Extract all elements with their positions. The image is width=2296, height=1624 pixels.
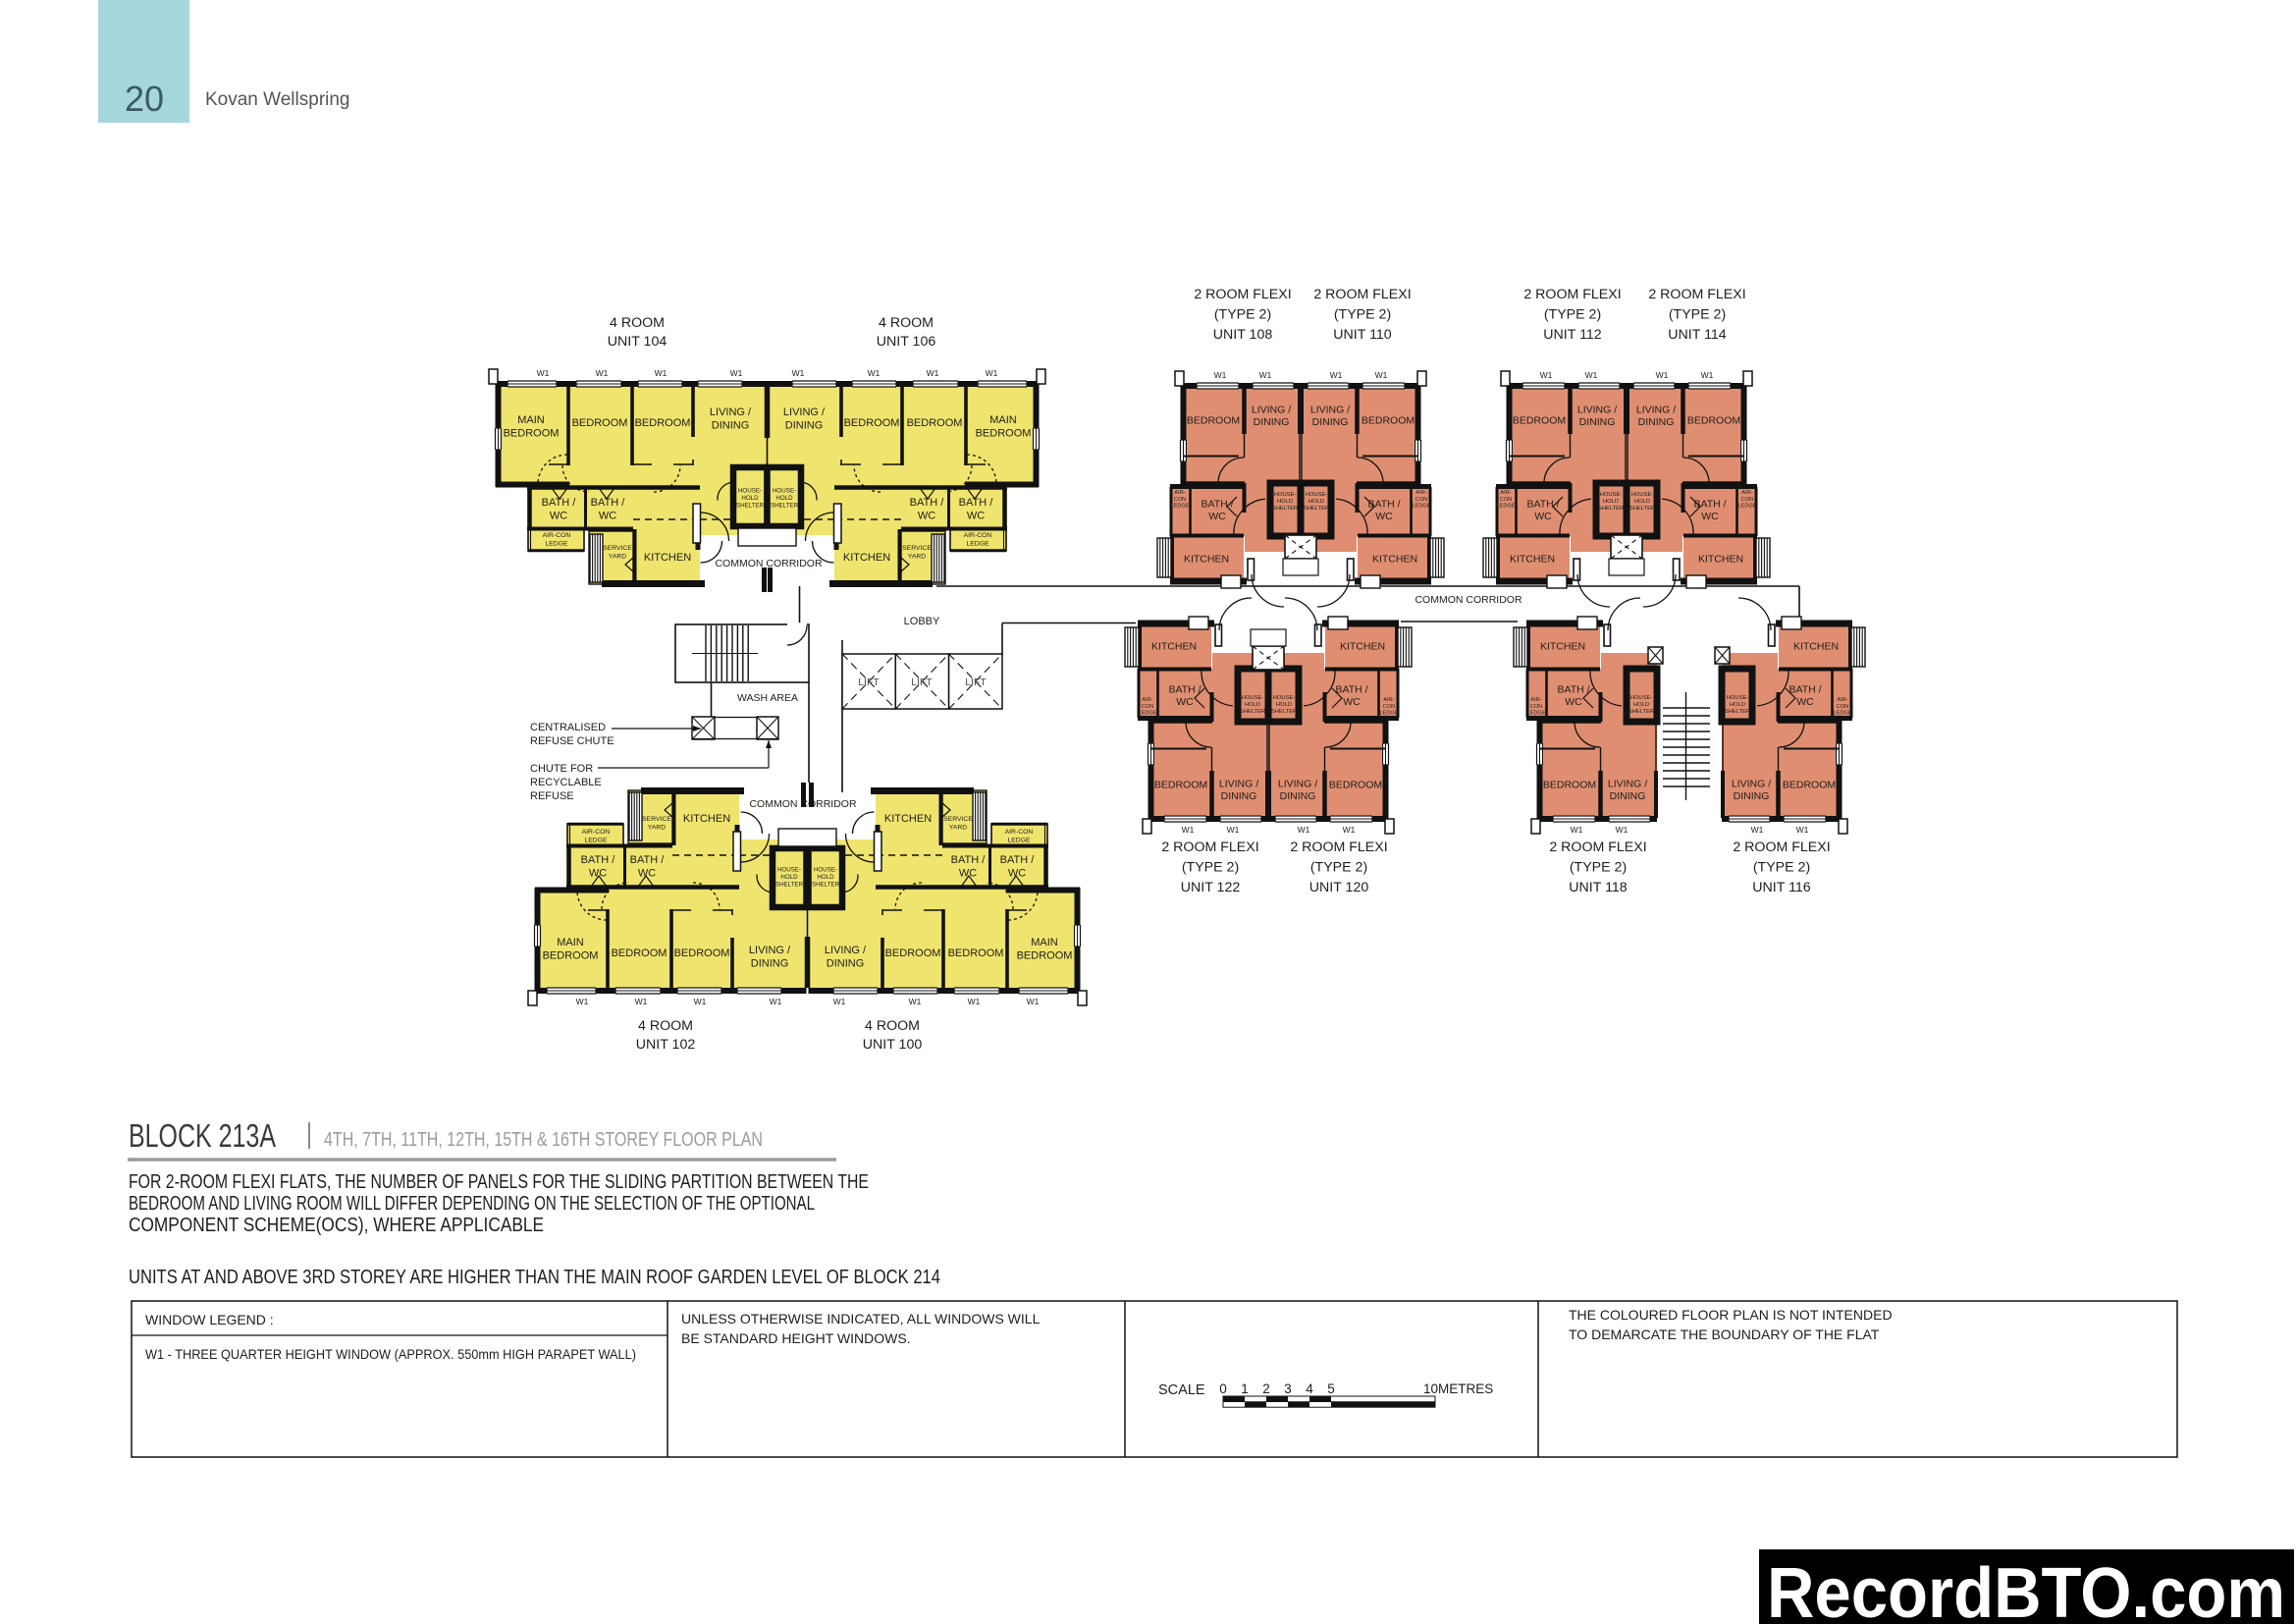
svg-text:(TYPE 2): (TYPE 2) (1669, 307, 1726, 323)
svg-text:DINING: DINING (827, 958, 865, 970)
svg-text:SHELTER: SHELTER (1240, 709, 1265, 715)
svg-text:HOUSE-: HOUSE- (773, 488, 796, 495)
svg-text:CON: CON (1383, 704, 1395, 710)
svg-text:W1: W1 (1027, 997, 1040, 1006)
svg-text:WC: WC (550, 511, 567, 522)
svg-text:SHELTER: SHELTER (736, 503, 765, 510)
svg-text:BATH /: BATH / (910, 497, 945, 509)
svg-text:BEDROOM: BEDROOM (948, 947, 1004, 959)
svg-text:SHELTER: SHELTER (1725, 709, 1750, 715)
svg-text:SCALE: SCALE (1158, 1382, 1205, 1398)
svg-text:(TYPE 2): (TYPE 2) (1544, 307, 1601, 323)
svg-text:WC: WC (599, 511, 616, 522)
svg-text:BATH /: BATH / (1168, 683, 1201, 695)
svg-text:THE COLOURED FLOOR PLAN IS NOT: THE COLOURED FLOOR PLAN IS NOT INTENDED (1569, 1307, 1893, 1323)
svg-text:KITCHEN: KITCHEN (1184, 554, 1229, 566)
svg-text:BEDROOM: BEDROOM (635, 417, 691, 429)
svg-text:UNIT 118: UNIT 118 (1569, 880, 1628, 895)
svg-text:MAIN: MAIN (557, 937, 584, 948)
svg-text:SERVICE: SERVICE (902, 545, 932, 552)
svg-text:(TYPE 2): (TYPE 2) (1182, 860, 1239, 876)
svg-text:LIVING /: LIVING / (1608, 778, 1647, 789)
svg-text:W1: W1 (868, 368, 881, 378)
svg-text:WC: WC (589, 868, 607, 880)
svg-text:W1: W1 (730, 368, 743, 378)
svg-text:BEDROOM: BEDROOM (844, 417, 900, 429)
svg-text:WC: WC (918, 511, 935, 522)
svg-text:UNIT 108: UNIT 108 (1213, 327, 1273, 343)
svg-text:HOUSE-: HOUSE- (1306, 492, 1328, 498)
svg-text:2 ROOM FLEXI: 2 ROOM FLEXI (1549, 839, 1646, 855)
svg-text:BEDROOM: BEDROOM (976, 428, 1032, 440)
svg-text:UNIT 114: UNIT 114 (1668, 327, 1727, 343)
svg-text:W1: W1 (833, 997, 846, 1006)
svg-text:W1: W1 (1259, 370, 1272, 380)
svg-text:W1: W1 (1796, 825, 1809, 835)
svg-text:BEDROOM: BEDROOM (1329, 780, 1382, 791)
svg-text:AIR-CON: AIR-CON (582, 829, 611, 836)
svg-text:DINING: DINING (1579, 416, 1616, 428)
svg-text:HOUSE-: HOUSE- (1242, 695, 1264, 701)
svg-text:W1: W1 (1182, 825, 1195, 835)
svg-text:SHELTER: SHELTER (1272, 506, 1298, 512)
svg-text:BATH /: BATH / (951, 854, 987, 866)
svg-text:CON: CON (1415, 497, 1427, 503)
svg-text:W1: W1 (927, 368, 939, 378)
svg-text:WC: WC (1375, 511, 1393, 522)
svg-text:WC: WC (967, 511, 985, 522)
svg-text:LIFT: LIFT (911, 677, 933, 688)
svg-text:HOUSE-: HOUSE- (1600, 492, 1623, 498)
svg-text:UNIT 112: UNIT 112 (1543, 327, 1602, 343)
svg-text:UNIT 106: UNIT 106 (877, 334, 936, 350)
svg-text:BEDROOM: BEDROOM (907, 417, 963, 429)
svg-text:W1: W1 (792, 368, 805, 378)
svg-text:SHELTER: SHELTER (1629, 709, 1654, 715)
svg-text:AIR-: AIR- (1500, 490, 1511, 496)
svg-text:CENTRALISED: CENTRALISED (530, 722, 606, 733)
svg-text:LIFT: LIFT (965, 677, 987, 688)
svg-text:UNIT 122: UNIT 122 (1181, 880, 1241, 895)
svg-text:CON: CON (1174, 497, 1186, 503)
svg-text:W1: W1 (1330, 370, 1343, 380)
svg-text:HOUSE-: HOUSE- (1631, 492, 1654, 498)
svg-text:KITCHEN: KITCHEN (1793, 641, 1839, 653)
svg-text:BATH /: BATH / (1367, 498, 1400, 510)
svg-text:UNIT 120: UNIT 120 (1309, 880, 1369, 895)
svg-text:BLOCK 213A: BLOCK 213A (129, 1117, 276, 1154)
svg-text:2 ROOM FLEXI: 2 ROOM FLEXI (1733, 839, 1830, 855)
svg-text:WC: WC (1701, 511, 1719, 522)
svg-text:LIVING /: LIVING / (1310, 404, 1350, 415)
svg-text:AIR-CON: AIR-CON (543, 532, 571, 539)
svg-text:AIR-CON: AIR-CON (1005, 829, 1034, 836)
svg-text:KITCHEN: KITCHEN (644, 552, 691, 564)
svg-text:CON: CON (1500, 497, 1512, 503)
svg-text:WC: WC (1208, 511, 1226, 522)
svg-text:DINING: DINING (1638, 416, 1675, 428)
svg-text:W1: W1 (968, 997, 981, 1006)
svg-text:SHELTER: SHELTER (1629, 506, 1655, 512)
svg-text:YARD: YARD (648, 825, 666, 832)
svg-text:W1: W1 (576, 997, 589, 1006)
svg-text:COMMON CORRIDOR: COMMON CORRIDOR (715, 558, 822, 569)
svg-text:DINING: DINING (1221, 790, 1257, 802)
svg-text:YARD: YARD (609, 554, 626, 561)
svg-text:HOLD: HOLD (741, 495, 759, 502)
svg-text:LEDGE: LEDGE (1497, 504, 1516, 510)
svg-text:REFUSE: REFUSE (530, 790, 574, 802)
svg-text:W1: W1 (694, 997, 707, 1006)
svg-text:2 ROOM FLEXI: 2 ROOM FLEXI (1161, 839, 1258, 855)
svg-text:BATH /: BATH / (1000, 854, 1036, 866)
svg-text:MAIN: MAIN (517, 414, 545, 426)
svg-text:KITCHEN: KITCHEN (1151, 641, 1197, 653)
svg-text:4 ROOM: 4 ROOM (610, 315, 665, 331)
svg-text:CON: CON (1530, 704, 1542, 710)
svg-text:BEDROOM: BEDROOM (1154, 780, 1207, 791)
svg-text:KITCHEN: KITCHEN (1340, 641, 1385, 653)
svg-text:SHELTER: SHELTER (1598, 506, 1624, 512)
svg-text:SHELTER: SHELTER (812, 882, 840, 889)
svg-text:KITCHEN: KITCHEN (1372, 554, 1417, 566)
svg-text:SHELTER: SHELTER (1304, 506, 1329, 512)
svg-text:W1: W1 (635, 997, 648, 1006)
svg-text:1: 1 (1241, 1381, 1249, 1396)
svg-text:WC: WC (1343, 696, 1361, 708)
svg-text:UNIT 104: UNIT 104 (608, 334, 667, 350)
svg-text:LEDGE: LEDGE (1139, 711, 1157, 717)
svg-text:KITCHEN: KITCHEN (1540, 641, 1585, 653)
svg-text:CON: CON (1142, 704, 1153, 710)
svg-text:10METRES: 10METRES (1423, 1381, 1493, 1396)
svg-text:KITCHEN: KITCHEN (1698, 554, 1743, 566)
svg-text:UNIT 100: UNIT 100 (863, 1037, 923, 1053)
svg-text:LEDGE: LEDGE (1007, 838, 1031, 844)
svg-text:BE STANDARD HEIGHT WINDOWS.: BE STANDARD HEIGHT WINDOWS. (681, 1330, 911, 1346)
svg-text:AIR-: AIR- (1415, 490, 1426, 496)
svg-text:SHELTER: SHELTER (771, 503, 799, 510)
svg-text:4 ROOM: 4 ROOM (865, 1018, 920, 1034)
svg-text:SERVICE: SERVICE (603, 545, 632, 552)
svg-text:BEDROOM AND LIVING ROOM WILL D: BEDROOM AND LIVING ROOM WILL DIFFER DEPE… (129, 1192, 815, 1215)
svg-text:DINING: DINING (751, 958, 789, 970)
svg-text:LIFT: LIFT (858, 677, 880, 688)
svg-text:WC: WC (1534, 511, 1552, 522)
svg-text:W1: W1 (1214, 370, 1227, 380)
svg-text:BEDROOM: BEDROOM (885, 947, 941, 959)
svg-text:LOBBY: LOBBY (904, 616, 940, 627)
svg-text:WC: WC (1008, 868, 1026, 880)
svg-text:CON: CON (1741, 497, 1753, 503)
svg-text:WASH AREA: WASH AREA (737, 692, 798, 704)
svg-text:COMMON CORRIDOR: COMMON CORRIDOR (1415, 594, 1522, 606)
svg-text:Kovan Wellspring: Kovan Wellspring (205, 89, 350, 110)
svg-text:AIR-: AIR- (1383, 697, 1394, 703)
svg-text:WC: WC (1176, 696, 1194, 708)
svg-text:W1: W1 (1375, 370, 1388, 380)
svg-text:KITCHEN: KITCHEN (843, 552, 890, 564)
svg-text:BEDROOM: BEDROOM (1687, 415, 1740, 427)
svg-text:LEDGE: LEDGE (1834, 711, 1852, 717)
svg-text:W1: W1 (1227, 825, 1240, 835)
svg-text:HOUSE-: HOUSE- (777, 867, 801, 874)
svg-text:AIR-: AIR- (1174, 490, 1185, 496)
svg-text:WC: WC (638, 868, 656, 880)
svg-text:BEDROOM: BEDROOM (612, 947, 667, 959)
svg-text:BATH /: BATH / (1335, 683, 1367, 695)
svg-text:HOLD: HOLD (817, 874, 834, 881)
svg-text:BEDROOM: BEDROOM (543, 950, 599, 962)
svg-text:LEDGE: LEDGE (1380, 711, 1399, 717)
svg-text:BEDROOM: BEDROOM (1017, 950, 1073, 962)
svg-text:BEDROOM: BEDROOM (1513, 415, 1566, 427)
svg-text:BEDROOM: BEDROOM (1187, 415, 1240, 427)
svg-text:LEDGE: LEDGE (1171, 504, 1190, 510)
svg-text:BATH /: BATH / (1526, 498, 1559, 510)
svg-text:HOLD: HOLD (1308, 499, 1324, 505)
svg-text:AIR-: AIR- (1837, 697, 1847, 703)
svg-text:AIR-: AIR- (1530, 697, 1541, 703)
svg-text:(TYPE 2): (TYPE 2) (1310, 860, 1367, 876)
svg-text:W1: W1 (1585, 370, 1598, 380)
svg-text:WC: WC (959, 868, 977, 880)
svg-text:W1: W1 (1298, 825, 1310, 835)
svg-text:LIVING /: LIVING / (1252, 404, 1291, 415)
svg-text:2 ROOM FLEXI: 2 ROOM FLEXI (1648, 287, 1745, 302)
svg-text:DINING: DINING (1280, 790, 1316, 802)
svg-text:LIVING /: LIVING / (825, 945, 867, 956)
svg-text:W1: W1 (1656, 370, 1669, 380)
svg-text:(TYPE 2): (TYPE 2) (1570, 860, 1627, 876)
svg-text:SHELTER: SHELTER (775, 882, 804, 889)
svg-text:HOUSE-: HOUSE- (1630, 695, 1653, 701)
svg-text:LEDGE: LEDGE (966, 541, 989, 548)
svg-text:DINING: DINING (1254, 416, 1290, 428)
svg-text:W1: W1 (1571, 825, 1583, 835)
svg-text:YARD: YARD (908, 554, 926, 561)
svg-text:BEDROOM: BEDROOM (504, 428, 560, 440)
svg-text:CON: CON (1837, 704, 1848, 710)
svg-text:LIVING /: LIVING / (710, 406, 752, 418)
svg-text:LIVING /: LIVING / (1732, 778, 1771, 789)
svg-text:AIR-: AIR- (1741, 490, 1752, 496)
svg-text:HOUSE-: HOUSE- (1274, 492, 1297, 498)
svg-text:FOR 2-ROOM FLEXI FLATS, THE NU: FOR 2-ROOM FLEXI FLATS, THE NUMBER OF PA… (129, 1170, 869, 1193)
svg-text:DINING: DINING (1610, 790, 1646, 802)
svg-text:LEDGE: LEDGE (1413, 504, 1431, 510)
svg-text:BATH /: BATH / (1201, 498, 1233, 510)
svg-text:REFUSE CHUTE: REFUSE CHUTE (530, 735, 614, 747)
svg-text:HOLD: HOLD (775, 495, 793, 502)
svg-text:0: 0 (1219, 1381, 1227, 1396)
svg-text:LIVING /: LIVING / (1577, 404, 1617, 415)
svg-text:LIVING /: LIVING / (1636, 404, 1676, 415)
svg-text:BEDROOM: BEDROOM (1543, 780, 1596, 791)
svg-text:BATH /: BATH / (1789, 683, 1821, 695)
svg-text:BATH /: BATH / (630, 854, 666, 866)
svg-text:BATH /: BATH / (1693, 498, 1726, 510)
svg-text:HOLD: HOLD (1603, 499, 1619, 505)
svg-text:KITCHEN: KITCHEN (884, 813, 932, 825)
svg-text:4 ROOM: 4 ROOM (879, 315, 934, 331)
svg-text:W1: W1 (1751, 825, 1764, 835)
svg-text:HOLD: HOLD (1276, 702, 1292, 708)
svg-text:UNIT 110: UNIT 110 (1333, 327, 1392, 343)
svg-text:DINING: DINING (1734, 790, 1770, 802)
svg-text:HOLD: HOLD (1633, 702, 1649, 708)
svg-text:HOUSE-: HOUSE- (1727, 695, 1749, 701)
svg-text:LEDGE: LEDGE (1738, 504, 1757, 510)
svg-text:BATH /: BATH / (542, 497, 577, 509)
svg-text:W1: W1 (537, 368, 550, 378)
svg-text:HOUSE-: HOUSE- (738, 488, 762, 495)
svg-text:UNITS AT AND ABOVE 3RD STOREY: UNITS AT AND ABOVE 3RD STOREY ARE HIGHER… (129, 1266, 940, 1288)
svg-text:W1: W1 (1540, 370, 1553, 380)
svg-text:BATH /: BATH / (591, 497, 626, 509)
svg-text:WC: WC (1565, 696, 1582, 708)
svg-text:TO DEMARCATE THE BOUNDARY OF T: TO DEMARCATE THE BOUNDARY OF THE FLAT (1569, 1326, 1880, 1342)
svg-text:BEDROOM: BEDROOM (572, 417, 628, 429)
svg-text:(TYPE 2): (TYPE 2) (1214, 307, 1271, 323)
svg-text:BATH /: BATH / (959, 497, 994, 509)
svg-text:20: 20 (125, 79, 164, 119)
svg-text:COMPONENT SCHEME(OCS), WHERE A: COMPONENT SCHEME(OCS), WHERE APPLICABLE (129, 1214, 544, 1236)
svg-text:HOLD: HOLD (1245, 702, 1260, 708)
svg-text:KITCHEN: KITCHEN (683, 813, 730, 825)
svg-text:UNIT 116: UNIT 116 (1752, 880, 1811, 895)
svg-text:W1 - THREE QUARTER HEIGHT WIN: W1 - THREE QUARTER HEIGHT WINDOW (APPROX… (145, 1346, 636, 1362)
svg-text:LIVING /: LIVING / (749, 945, 791, 956)
svg-text:SERVICE: SERVICE (642, 816, 671, 823)
svg-text:(TYPE 2): (TYPE 2) (1753, 860, 1810, 876)
svg-text:2: 2 (1262, 1381, 1270, 1396)
svg-text:W1: W1 (596, 368, 609, 378)
svg-text:(TYPE 2): (TYPE 2) (1334, 307, 1391, 323)
svg-text:KITCHEN: KITCHEN (1510, 554, 1555, 566)
svg-text:HOUSE-: HOUSE- (1273, 695, 1296, 701)
svg-text:UNIT 102: UNIT 102 (636, 1037, 696, 1053)
svg-text:AIR-CON: AIR-CON (964, 532, 992, 539)
svg-text:LIVING /: LIVING / (783, 406, 826, 418)
svg-text:LIVING /: LIVING / (1219, 778, 1258, 789)
svg-text:BEDROOM: BEDROOM (1783, 780, 1836, 791)
svg-text:BATH /: BATH / (581, 854, 616, 866)
svg-text:4: 4 (1306, 1381, 1313, 1396)
svg-text:DINING: DINING (712, 420, 750, 432)
svg-text:LEDGE: LEDGE (1527, 711, 1546, 717)
svg-text:WC: WC (1796, 696, 1814, 708)
svg-text:LIVING /: LIVING / (1278, 778, 1317, 789)
svg-text:3: 3 (1284, 1381, 1292, 1396)
svg-text:W1: W1 (655, 368, 667, 378)
svg-text:W1: W1 (1701, 370, 1714, 380)
svg-text:RecordBTO.com: RecordBTO.com (1767, 1554, 2285, 1624)
svg-text:BATH /: BATH / (1557, 683, 1589, 695)
svg-text:HOUSE-: HOUSE- (814, 867, 837, 874)
svg-text:RECYCLABLE: RECYCLABLE (530, 777, 602, 788)
svg-text:HOLD: HOLD (780, 874, 798, 881)
svg-text:BEDROOM: BEDROOM (1362, 415, 1415, 427)
svg-text:BEDROOM: BEDROOM (674, 947, 730, 959)
svg-text:2 ROOM FLEXI: 2 ROOM FLEXI (1194, 287, 1291, 302)
svg-text:HOLD: HOLD (1634, 499, 1650, 505)
svg-text:DINING: DINING (1312, 416, 1349, 428)
svg-text:W1: W1 (909, 997, 922, 1006)
svg-text:W1: W1 (1616, 825, 1629, 835)
svg-text:HOLD: HOLD (1730, 702, 1745, 708)
svg-text:W1: W1 (1343, 825, 1356, 835)
svg-text:W1: W1 (770, 997, 782, 1006)
svg-text:LEDGE: LEDGE (584, 838, 608, 844)
svg-text:5: 5 (1327, 1381, 1335, 1396)
svg-text:YARD: YARD (949, 825, 967, 832)
svg-text:UNLESS OTHERWISE INDICATED, AL: UNLESS OTHERWISE INDICATED, ALL WINDOWS … (681, 1311, 1041, 1326)
svg-text:CHUTE FOR: CHUTE FOR (530, 763, 593, 775)
svg-text:AIR-: AIR- (1142, 697, 1152, 703)
svg-text:W1: W1 (986, 368, 998, 378)
svg-text:2 ROOM FLEXI: 2 ROOM FLEXI (1523, 287, 1621, 302)
svg-text:MAIN: MAIN (1031, 937, 1058, 948)
svg-text:DINING: DINING (785, 420, 824, 432)
svg-text:COMMON CORRIDOR: COMMON CORRIDOR (749, 798, 856, 810)
svg-text:2 ROOM FLEXI: 2 ROOM FLEXI (1290, 839, 1387, 855)
svg-text:WINDOW LEGEND :: WINDOW LEGEND : (145, 1312, 274, 1327)
svg-text:SERVICE: SERVICE (943, 816, 973, 823)
svg-text:LEDGE: LEDGE (545, 541, 568, 548)
svg-text:SHELTER: SHELTER (1271, 709, 1297, 715)
svg-text:HOLD: HOLD (1277, 499, 1293, 505)
svg-text:MAIN: MAIN (989, 414, 1017, 426)
svg-text:2 ROOM FLEXI: 2 ROOM FLEXI (1313, 287, 1411, 302)
svg-text:4 ROOM: 4 ROOM (638, 1018, 693, 1034)
svg-text:4TH, 7TH, 11TH, 12TH, 15TH &: 4TH, 7TH, 11TH, 12TH, 15TH & 16TH STOREY… (324, 1129, 763, 1151)
